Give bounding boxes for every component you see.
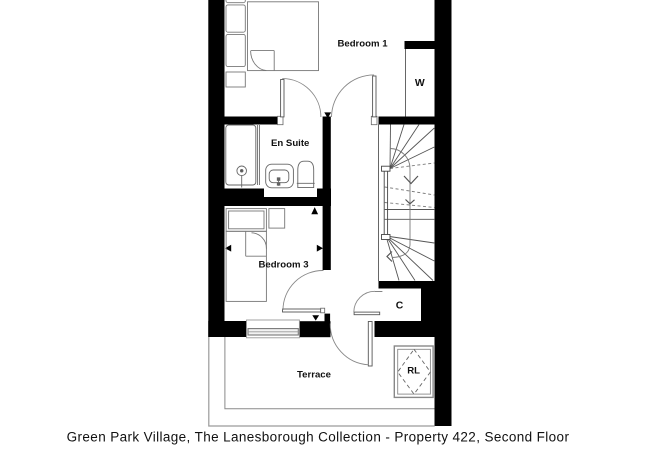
svg-text:Bedroom 3: Bedroom 3 bbox=[258, 260, 308, 271]
svg-text:En Suite: En Suite bbox=[271, 138, 309, 149]
svg-text:RL: RL bbox=[407, 366, 420, 377]
svg-text:Terrace: Terrace bbox=[297, 369, 331, 380]
svg-text:C: C bbox=[396, 300, 404, 311]
svg-text:Green Park Village, The Lanesb: Green Park Village, The Lanesborough Col… bbox=[67, 429, 570, 444]
svg-text:W: W bbox=[415, 78, 425, 89]
svg-text:Bedroom 1: Bedroom 1 bbox=[337, 39, 388, 50]
